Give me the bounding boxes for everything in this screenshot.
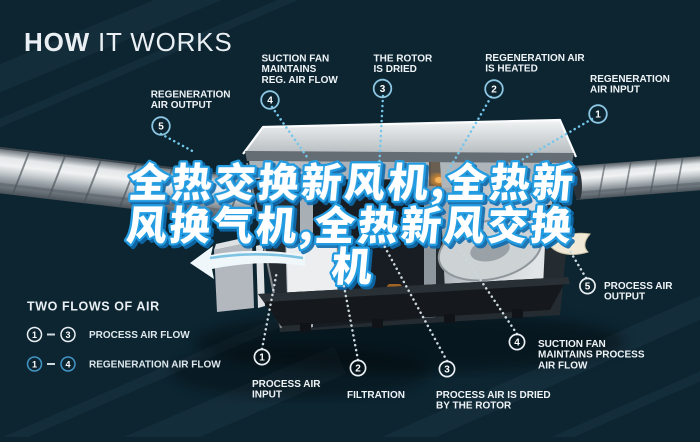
svg-text:PROCESS AIR: PROCESS AIR bbox=[604, 281, 673, 292]
svg-text:REGENERATION AIR FLOW: REGENERATION AIR FLOW bbox=[89, 360, 221, 371]
svg-text:SUCTION FAN: SUCTION FAN bbox=[538, 339, 606, 350]
svg-text:THE ROTOR: THE ROTOR bbox=[374, 53, 433, 64]
svg-text:2: 2 bbox=[491, 85, 497, 96]
svg-text:BY THE ROTOR: BY THE ROTOR bbox=[436, 401, 512, 412]
svg-text:SUCTION FAN: SUCTION FAN bbox=[262, 53, 330, 64]
svg-text:IS HEATED: IS HEATED bbox=[485, 64, 538, 75]
svg-text:1: 1 bbox=[32, 360, 37, 370]
svg-text:PROCESS AIR FLOW: PROCESS AIR FLOW bbox=[89, 330, 190, 341]
svg-text:1: 1 bbox=[595, 110, 601, 121]
svg-text:PROCESS AIR: PROCESS AIR bbox=[252, 379, 321, 390]
svg-text:REGENERATION AIR: REGENERATION AIR bbox=[485, 53, 585, 64]
svg-text:IS DRIED: IS DRIED bbox=[374, 64, 417, 75]
svg-text:AIR INPUT: AIR INPUT bbox=[590, 85, 640, 96]
svg-text:PROCESS AIR IS DRIED: PROCESS AIR IS DRIED bbox=[436, 390, 551, 401]
svg-text:4: 4 bbox=[267, 96, 273, 107]
svg-text:OUTPUT: OUTPUT bbox=[604, 292, 645, 303]
svg-text:AIR OUTPUT: AIR OUTPUT bbox=[151, 100, 212, 111]
svg-text:TWO FLOWS OF AIR: TWO FLOWS OF AIR bbox=[27, 300, 160, 314]
svg-text:AIR FLOW: AIR FLOW bbox=[538, 360, 588, 371]
svg-text:4: 4 bbox=[65, 360, 70, 370]
svg-text:MAINTAINS: MAINTAINS bbox=[262, 64, 317, 75]
svg-text:FILTRATION: FILTRATION bbox=[347, 390, 405, 401]
svg-text:3: 3 bbox=[444, 365, 450, 376]
svg-text:REGENERATION: REGENERATION bbox=[590, 74, 670, 85]
svg-text:1: 1 bbox=[32, 330, 37, 340]
svg-text:INPUT: INPUT bbox=[252, 390, 282, 401]
svg-text:5: 5 bbox=[585, 282, 591, 293]
svg-text:3: 3 bbox=[65, 330, 70, 340]
svg-text:2: 2 bbox=[355, 364, 361, 375]
svg-text:MAINTAINS PROCESS: MAINTAINS PROCESS bbox=[538, 350, 645, 361]
svg-text:5: 5 bbox=[158, 122, 164, 133]
svg-text:REG. AIR FLOW: REG. AIR FLOW bbox=[262, 75, 339, 86]
svg-text:3: 3 bbox=[380, 84, 386, 95]
svg-text:4: 4 bbox=[514, 338, 520, 349]
svg-text:1: 1 bbox=[259, 353, 265, 364]
svg-text:HOW IT WORKS: HOW IT WORKS bbox=[24, 27, 232, 57]
